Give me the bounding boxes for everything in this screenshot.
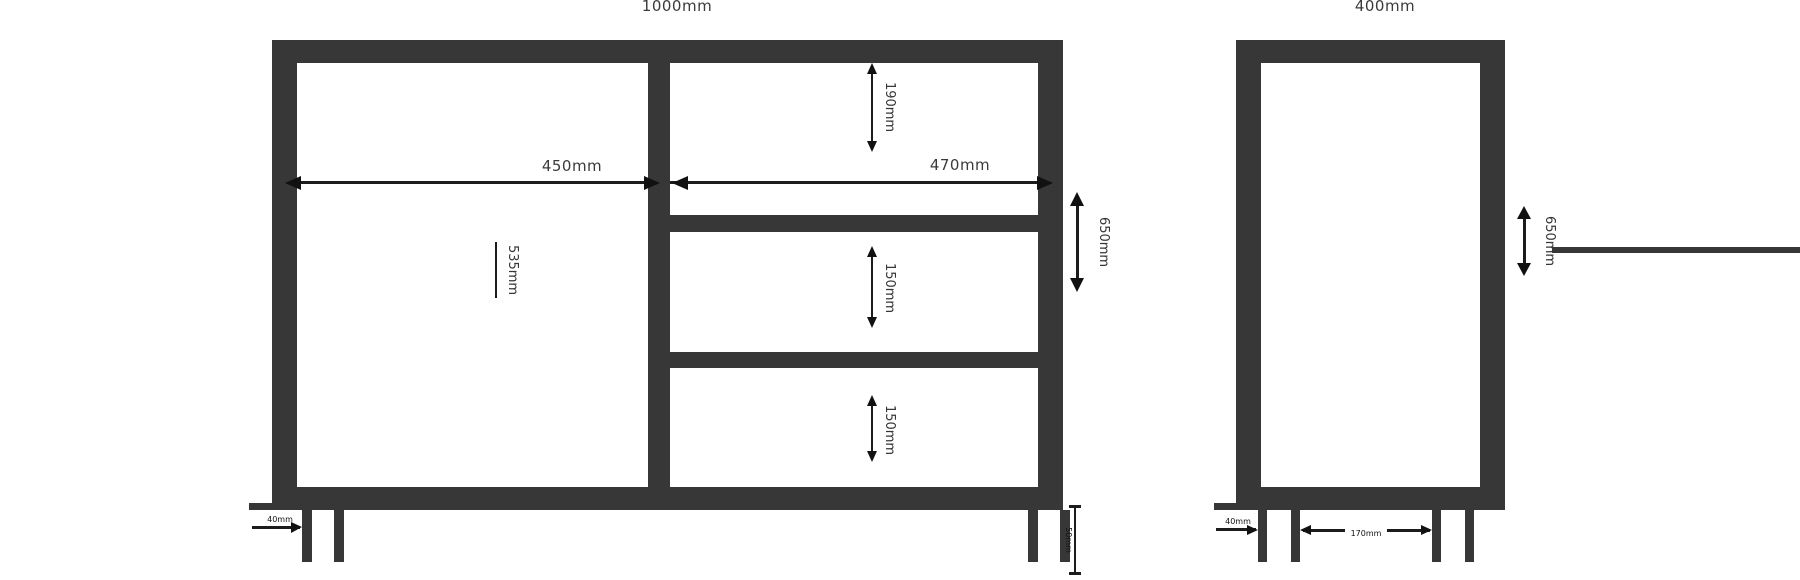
side-leg-gap-dimension: 170mm [1300, 525, 1432, 538]
drawer-3-height-label: 150mm [882, 405, 897, 455]
front-drawer-rail-2 [670, 352, 1038, 368]
drawer-2-height-dimension: 150mm [867, 246, 897, 328]
drawer-1-arrow-top [867, 63, 877, 74]
door-width-label: 450mm [542, 157, 602, 175]
drawer-1-arrow-bottom [867, 141, 877, 152]
side-height-leader-line [1552, 247, 1800, 253]
side-leg-inset-arrow [1247, 525, 1258, 535]
side-leg-gap-arrow-right [1421, 525, 1432, 535]
side-top-panel [1236, 40, 1505, 63]
drawer-2-arrow-bottom [867, 317, 877, 328]
side-extension-stub [1214, 503, 1238, 510]
side-front-edge-panel [1236, 40, 1261, 510]
drawer-3-arrow-top [867, 395, 877, 406]
front-extension-stub [249, 503, 275, 510]
drawer-3-height-dimension: 150mm [867, 395, 897, 462]
side-leg-inset-dimension: 40mm [1216, 517, 1258, 535]
front-elevation [249, 40, 1070, 562]
front-center-divider [648, 63, 670, 487]
side-bottom-panel [1236, 487, 1505, 510]
side-elevation [1214, 40, 1505, 562]
front-height-label: 650mm [1096, 217, 1111, 267]
front-leg-inset-label: 40mm [267, 515, 293, 524]
side-depth-label: 400mm [1355, 0, 1415, 15]
cabinet-drawing: 1000mm 450mm 470mm 650mm 535mm 190mm [0, 0, 1800, 580]
side-leg-gap-arrow-left [1300, 525, 1311, 535]
side-right-leg [1432, 510, 1474, 562]
side-height-dimension: 650mm [1517, 206, 1800, 276]
drawer-1-height-label: 190mm [882, 82, 897, 132]
front-leg-inset-dimension: 40mm [252, 515, 302, 533]
drawer-2-height-label: 150mm [882, 263, 897, 313]
front-height-dimension: 650mm [1070, 192, 1111, 292]
side-height-label: 650mm [1542, 216, 1557, 266]
front-top-panel [272, 40, 1063, 63]
front-width-dimension: 1000mm [593, 0, 761, 18]
side-height-arrow-bottom [1517, 263, 1531, 276]
front-right-leg [1028, 510, 1070, 562]
door-height-label: 535mm [505, 245, 520, 295]
drawer-width-dimension: 470mm [670, 151, 1053, 190]
side-left-leg [1258, 510, 1300, 562]
front-height-arrow-top [1070, 192, 1084, 206]
drawer-2-arrow-top [867, 246, 877, 257]
drawer-width-label: 470mm [930, 156, 990, 174]
side-height-arrow-top [1517, 206, 1531, 219]
front-drawer-rail-1 [670, 215, 1038, 232]
side-leg-gap-label: 170mm [1351, 529, 1382, 538]
front-leg-height-label: 50mm [1064, 527, 1073, 553]
drawer-3-arrow-bottom [867, 451, 877, 462]
front-right-side-panel [1038, 40, 1063, 510]
side-depth-dimension: 400mm [1326, 0, 1444, 18]
technical-drawing-canvas: 1000mm 450mm 470mm 650mm 535mm 190mm [0, 0, 1800, 580]
side-back-edge-panel [1480, 40, 1505, 510]
side-leg-inset-label: 40mm [1225, 517, 1251, 526]
front-left-leg [302, 510, 344, 562]
front-width-label: 1000mm [642, 0, 712, 15]
front-height-arrow-bottom [1070, 278, 1084, 292]
drawer-width-arrow-left [672, 176, 688, 190]
front-bottom-panel [272, 487, 1063, 510]
door-width-dimension: 450mm [285, 152, 660, 190]
drawer-1-height-dimension: 190mm [867, 63, 897, 152]
front-left-side-panel [272, 40, 297, 510]
door-height-dimension: 535mm [495, 242, 520, 298]
